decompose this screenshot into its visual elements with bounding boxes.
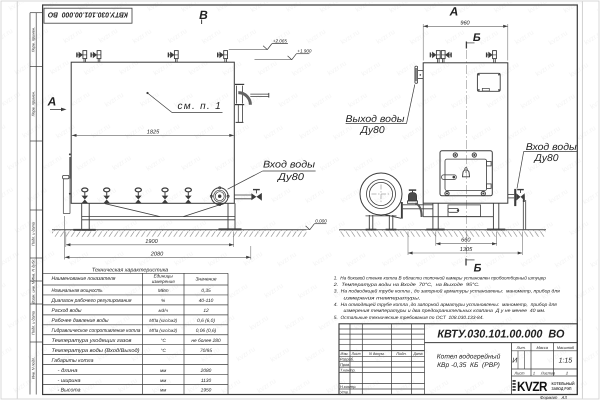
- svg-text:+2.065: +2.065: [273, 38, 288, 43]
- svg-text:0.000: 0.000: [315, 219, 327, 224]
- svg-text:Б: Б: [473, 32, 481, 44]
- svg-text:1. На боковой стенке котла В: 1. На боковой стенке котла В области топ…: [334, 276, 546, 281]
- svg-text:Ду80: Ду80: [533, 153, 559, 164]
- svg-text:Листов: Листов: [540, 371, 555, 376]
- svg-text:Расход воды: Расход воды: [52, 308, 82, 314]
- svg-text:- ширина: - ширина: [58, 378, 81, 384]
- svg-text:Утв.: Утв.: [340, 389, 349, 394]
- svg-text:измерения температуры и два пр: измерения температуры и два предохраните…: [344, 308, 546, 313]
- svg-text:измерения температуры.: измерения температуры.: [344, 295, 421, 300]
- svg-text:мм: мм: [160, 378, 167, 383]
- svg-text:Лист: Лист: [513, 371, 525, 376]
- svg-text:- длина: - длина: [58, 368, 78, 374]
- svg-text:2080: 2080: [150, 252, 164, 258]
- svg-text:Подп. и дата: Подп. и дата: [32, 222, 36, 246]
- svg-text:Подп.: Подп.: [396, 351, 406, 356]
- svg-text:70/95: 70/95: [200, 348, 212, 354]
- svg-text:12: 12: [203, 308, 209, 314]
- svg-text:МВт: МВт: [158, 288, 169, 293]
- svg-text:Значение: Значение: [195, 277, 216, 283]
- svg-text:°С: °С: [161, 348, 167, 353]
- svg-text:4. На отводящей трубе котла ,: 4. На отводящей трубе котла ,до запорной…: [334, 302, 558, 307]
- svg-text:Дата: Дата: [413, 351, 424, 356]
- svg-text:1305: 1305: [460, 247, 473, 253]
- svg-text:МПа (кгс/см2): МПа (кгс/см2): [149, 318, 177, 323]
- svg-text:Гидравлическое сопротивление к: Гидравлическое сопротивление котла: [52, 328, 141, 334]
- svg-text:660: 660: [461, 237, 471, 243]
- svg-text:Рабочее давление воды: Рабочее давление воды: [52, 318, 109, 324]
- svg-text:мм: мм: [160, 388, 167, 393]
- svg-text:Лит.: Лит.: [516, 345, 526, 350]
- svg-text:0,06 (0,6): 0,06 (0,6): [196, 328, 217, 334]
- svg-text:м3/ч: м3/ч: [159, 308, 169, 313]
- svg-text:960: 960: [460, 21, 470, 27]
- svg-text:КВр -0,35 КБ (РВР): КВр -0,35 КБ (РВР): [437, 362, 500, 369]
- svg-text:Пров.: Пров.: [340, 362, 350, 367]
- svg-text:А: А: [47, 95, 57, 109]
- svg-text:Масса: Масса: [536, 345, 548, 350]
- svg-text:N докум.: N докум.: [369, 351, 385, 356]
- svg-text:Перв. примен.: Перв. примен.: [32, 27, 36, 52]
- svg-text:%: %: [161, 298, 165, 303]
- svg-text:Ду80: Ду80: [277, 172, 305, 183]
- svg-text:В: В: [199, 8, 208, 22]
- svg-text:Б: Б: [474, 263, 482, 275]
- svg-text:°С: °С: [161, 338, 167, 343]
- svg-text:МПа (кгс/см2): МПа (кгс/см2): [149, 328, 177, 333]
- svg-text:Наименование показателя: Наименование показателя: [52, 276, 116, 282]
- svg-text:Н.контр.: Н.контр.: [340, 384, 356, 389]
- svg-text:Единицы: Единицы: [154, 274, 174, 279]
- svg-text:Взам. инв. N: Взам. инв. N: [32, 281, 36, 303]
- svg-text:см. п. 1: см. п. 1: [178, 101, 222, 112]
- svg-text:Вход воды: Вход воды: [263, 159, 316, 170]
- svg-text:0,35: 0,35: [201, 288, 211, 294]
- svg-text:Лист: Лист: [351, 351, 362, 356]
- svg-text:А: А: [449, 5, 459, 19]
- svg-text:Диапазон рабочего регулировани: Диапазон рабочего регулирования: [51, 298, 132, 304]
- svg-text:Инв. N подл.: Инв. N подл.: [32, 357, 36, 379]
- svg-text:КВТУ.030.101.00.000 ВО: КВТУ.030.101.00.000 ВО: [437, 328, 564, 340]
- svg-text:2080: 2080: [200, 368, 212, 374]
- svg-text:Изм.: Изм.: [341, 351, 349, 356]
- svg-text:5. Остальные технические треб: 5. Остальные технические требования по О…: [334, 315, 484, 320]
- svg-text:2. Температура воды на Входе: 2. Температура воды на Входе 70°С, на Вы…: [333, 282, 480, 287]
- svg-text:Масштаб: Масштаб: [557, 345, 575, 350]
- svg-text:0,6 (6,0): 0,6 (6,0): [197, 318, 215, 324]
- svg-text:1950: 1950: [201, 388, 212, 394]
- svg-text:1: 1: [533, 371, 535, 376]
- svg-text:Ду80: Ду80: [360, 125, 386, 136]
- svg-text:мм: мм: [160, 368, 167, 373]
- svg-text:Разраб.: Разраб.: [340, 357, 354, 362]
- svg-text:Температура воды (Вход/Выход): Температура воды (Вход/Выход): [52, 348, 140, 354]
- svg-text:измерения: измерения: [152, 279, 176, 284]
- svg-text:Котел водогрейный: Котел водогрейный: [437, 354, 501, 361]
- svg-text:3. На подводящей трубе котла: 3. На подводящей трубе котла , до запорн…: [334, 289, 561, 294]
- svg-text:А3: А3: [561, 395, 568, 400]
- svg-text:KVZR: KVZR: [517, 379, 548, 394]
- svg-text:Техническая характеристика: Техническая характеристика: [92, 267, 168, 273]
- svg-text:40-110: 40-110: [199, 298, 214, 304]
- svg-text:Подп. и дата: Подп. и дата: [32, 311, 36, 335]
- svg-text:не более 280: не более 280: [191, 338, 221, 344]
- svg-text:1130: 1130: [201, 378, 212, 384]
- svg-text:Инв. N дубл.: Инв. N дубл.: [32, 259, 36, 281]
- svg-text:+1.900: +1.900: [297, 49, 312, 54]
- svg-text:ЗАВОД РЭП: ЗАВОД РЭП: [552, 386, 572, 391]
- svg-text:Т.контр.: Т.контр.: [340, 367, 356, 372]
- svg-text:КВТУ.030.101.00.000 ВО: КВТУ.030.101.00.000 ВО: [48, 11, 128, 20]
- svg-text:1900: 1900: [145, 239, 158, 245]
- svg-text:1:15: 1:15: [559, 358, 573, 365]
- svg-text:Номинальная мощность: Номинальная мощность: [52, 288, 103, 294]
- svg-text:Перв. примен.: Перв. примен.: [32, 91, 36, 116]
- svg-text:1825: 1825: [147, 130, 160, 136]
- svg-text:Температура уходящих газов: Температура уходящих газов: [52, 338, 132, 344]
- svg-text:Габариты котла: Габариты котла: [52, 358, 94, 364]
- svg-text:Формат: Формат: [540, 395, 558, 400]
- svg-text:- Высота: - Высота: [58, 388, 81, 394]
